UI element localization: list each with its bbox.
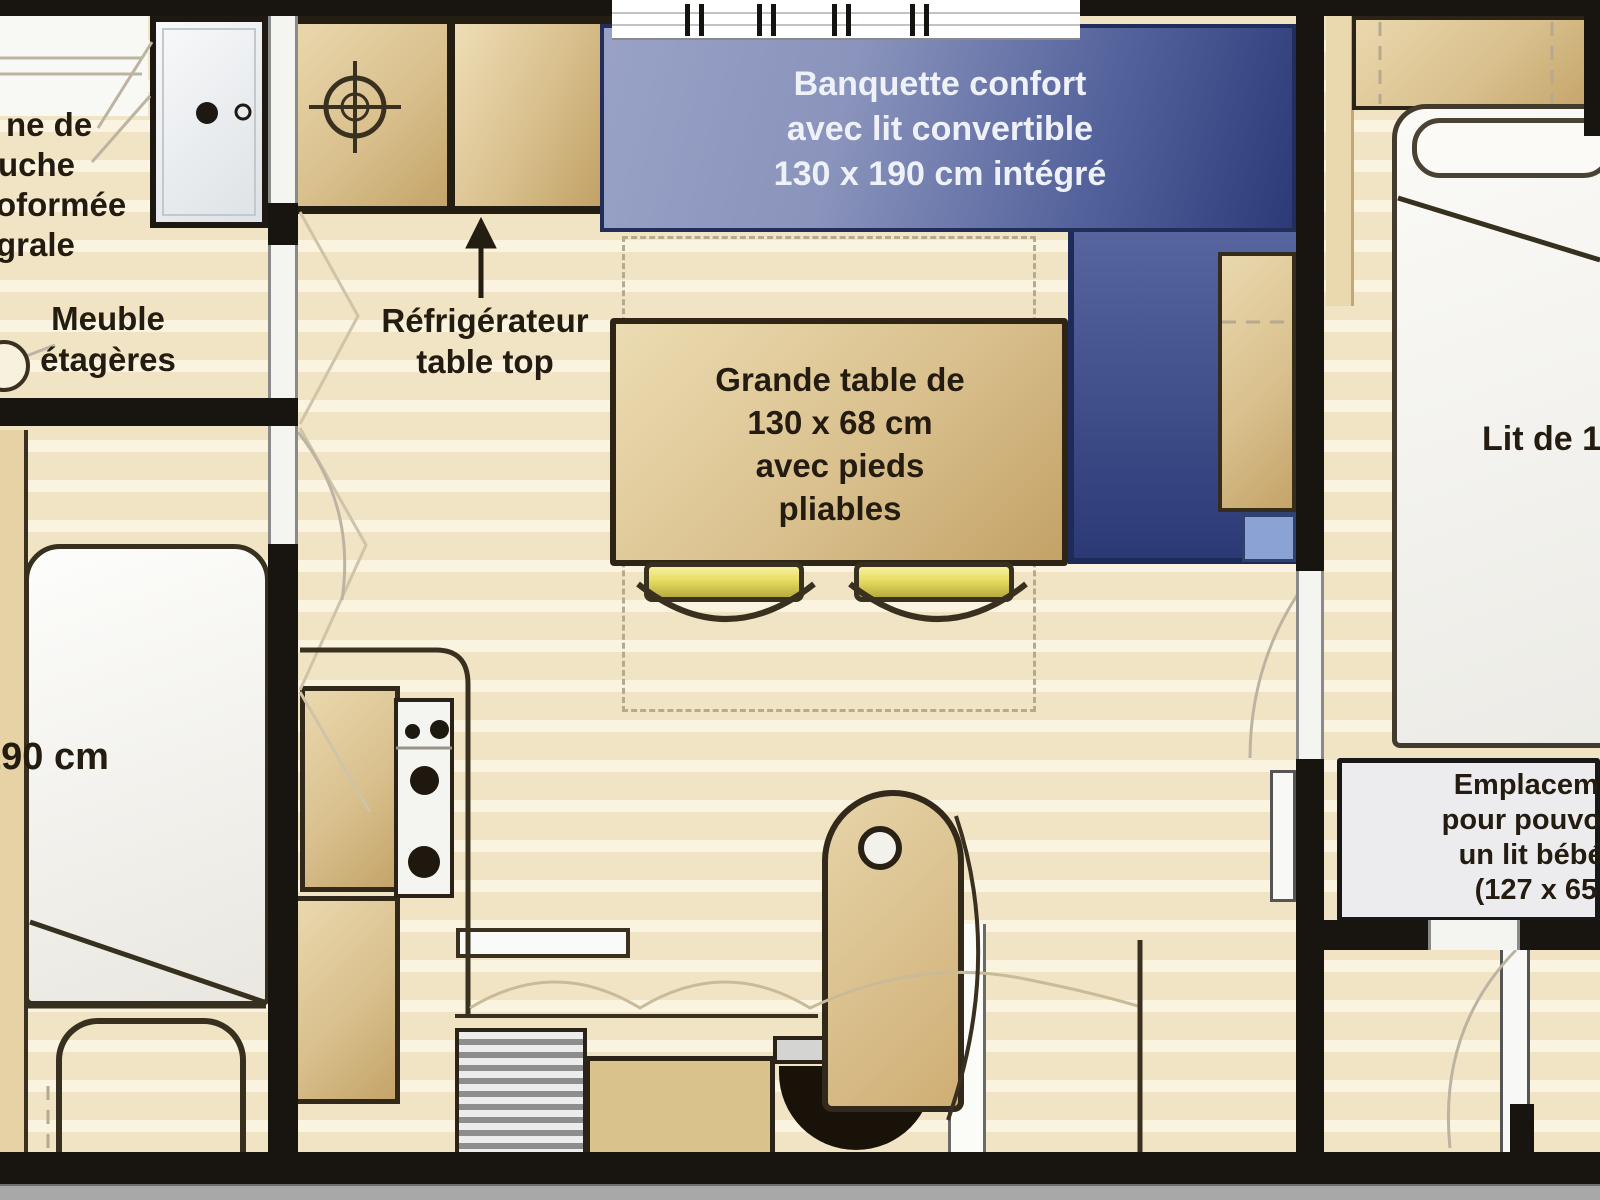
banquette-label-line3: 130 x 190 cm intégré	[610, 152, 1270, 197]
banquette-end-cushion	[1242, 514, 1296, 562]
right-bed-label: Lit de 1	[1482, 420, 1600, 459]
banquette-label-line2: avec lit convertible	[610, 107, 1270, 152]
wall-bath-horizontal	[0, 398, 298, 426]
shower-label-line2: uche	[0, 146, 75, 184]
hob-burner-small-1	[405, 724, 420, 739]
kitchen-top-cabinet	[283, 16, 617, 214]
wall-left-seg2	[268, 544, 298, 1154]
baby-bed-label-line3: un lit bébé pl	[1348, 838, 1600, 873]
kitchen-base-cabinet-lower	[292, 896, 400, 1104]
banquette-side-shelf	[1218, 252, 1296, 512]
table-label-line1: Grande table de	[640, 358, 1040, 401]
shower-label-line4: grale	[0, 226, 75, 264]
shower-tray	[0, 14, 148, 116]
door-opening-bedroom-bottom	[1428, 920, 1520, 950]
window-mullion	[771, 4, 776, 36]
window-mullion	[910, 4, 915, 36]
baby-bed-label-line4: (127 x 65 c	[1348, 873, 1600, 908]
shower-door	[150, 16, 268, 228]
window-top	[612, 0, 1080, 40]
wall-bedroom-vertical-lower	[1296, 759, 1324, 1154]
shower-label-line3: oformée	[0, 186, 126, 224]
sink-unit	[456, 928, 630, 958]
wall-bottom	[0, 1152, 1600, 1184]
table-label-line4: pliables	[640, 487, 1040, 530]
shelf-unit-label: Meuble étagères	[18, 298, 198, 380]
window-mullion	[846, 4, 851, 36]
wall-top-right	[1078, 0, 1600, 16]
hob-burner-large-1	[410, 766, 439, 795]
kitchen-base-cabinet-upper	[300, 686, 400, 892]
table-label-line2: 130 x 68 cm	[640, 401, 1040, 444]
fridge-label: Réfrigérateur table top	[350, 300, 620, 382]
left-bed-size-label: 190 cm	[0, 736, 109, 779]
window-mullion	[832, 4, 837, 36]
chair-seat-left	[644, 562, 804, 602]
shower-label-line1: ne de	[6, 106, 92, 144]
window-mullion	[757, 4, 762, 36]
wall-bedroom-vertical-upper	[1296, 15, 1324, 571]
door-opening-right-bedroom	[1296, 571, 1324, 759]
hob-panel	[394, 698, 454, 898]
right-bed-pillow	[1412, 118, 1600, 178]
fridge-label-line1: Réfrigérateur	[350, 300, 620, 341]
hob-burner-large-2	[408, 846, 440, 878]
wall-top-left	[0, 0, 614, 16]
right-overhead-cabinet	[1352, 16, 1600, 110]
curtain-lines	[470, 972, 1138, 1008]
window-mullion	[699, 4, 704, 36]
ground-band	[0, 1184, 1600, 1200]
shower-door-inner-line	[162, 28, 256, 216]
fridge-top-cabinet	[455, 24, 613, 206]
wall-left-seg1	[268, 203, 298, 245]
baby-bed-label: Emplacement pour pouvoir in un lit bébé …	[1348, 768, 1600, 908]
banquette-label-line1: Banquette confort	[610, 62, 1270, 107]
fridge-arrow-icon	[466, 218, 496, 298]
window-mullion	[924, 4, 929, 36]
shelf-unit-label-line1: Meuble	[18, 298, 198, 339]
table-label-line3: avec pieds	[640, 444, 1040, 487]
banquette-label: Banquette confort avec lit convertible 1…	[610, 62, 1270, 197]
fridge-label-line2: table top	[350, 341, 620, 382]
floorplan-canvas: Banquette confort avec lit convertible 1…	[0, 0, 1600, 1200]
right-side-shelf	[1326, 16, 1354, 306]
shelf-unit-label-line2: étagères	[18, 339, 198, 380]
baby-bed-label-line2: pour pouvoir in	[1348, 803, 1600, 838]
baby-bed-label-line1: Emplacement	[1348, 768, 1600, 803]
kitchen-sink-counter	[289, 24, 447, 206]
window-mullion	[685, 4, 690, 36]
door-opening-left-bedroom	[268, 426, 298, 544]
wall-left-upper-white	[268, 16, 298, 203]
bedroom-door-panel	[1270, 770, 1296, 902]
chair-seat-right	[854, 562, 1014, 602]
table-label: Grande table de 130 x 68 cm avec pieds p…	[640, 358, 1040, 530]
hob-burner-small-2	[430, 720, 449, 739]
entry-door-porthole	[858, 826, 902, 870]
wall-left-mid-white	[268, 245, 298, 398]
wall-right-corner	[1584, 0, 1600, 136]
